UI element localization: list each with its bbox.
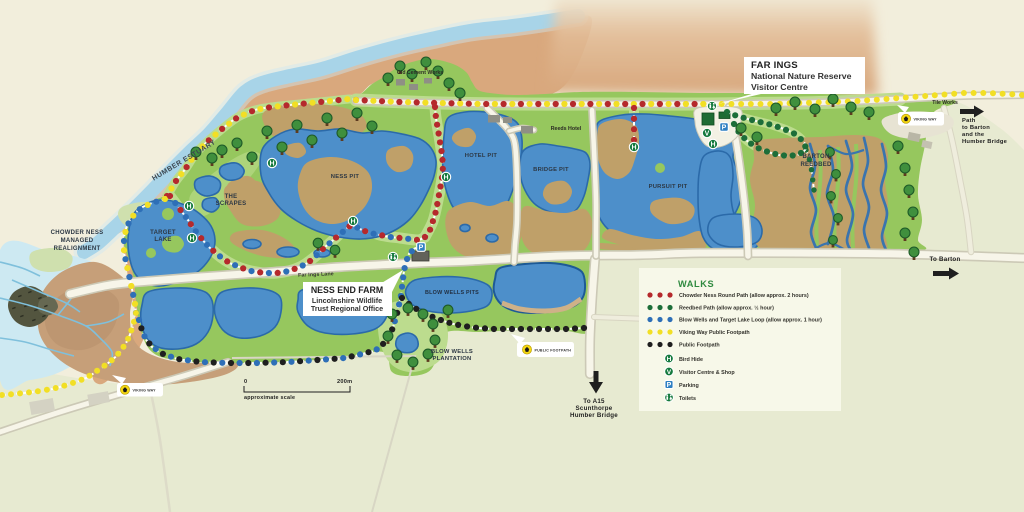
- svg-text:To A15: To A15: [583, 398, 605, 405]
- svg-text:PLANTATION: PLANTATION: [433, 356, 472, 362]
- svg-text:V: V: [705, 131, 710, 138]
- svg-text:Reedbed Path (allow approx. ½: Reedbed Path (allow approx. ½ hour): [679, 305, 774, 312]
- svg-text:Tile Works: Tile Works: [932, 100, 958, 106]
- svg-text:BLOW WELLS PITS: BLOW WELLS PITS: [425, 290, 479, 296]
- svg-text:VIKING WAY: VIKING WAY: [133, 389, 157, 393]
- svg-text:and the: and the: [962, 132, 985, 138]
- svg-text:to Barton: to Barton: [962, 125, 990, 131]
- svg-text:H: H: [269, 161, 274, 168]
- svg-text:P: P: [667, 382, 672, 389]
- svg-text:P: P: [419, 245, 424, 252]
- svg-text:H: H: [189, 236, 194, 243]
- svg-text:V: V: [667, 369, 672, 376]
- svg-text:H: H: [710, 142, 715, 149]
- svg-text:THE: THE: [225, 194, 238, 200]
- svg-text:P: P: [722, 125, 727, 132]
- svg-text:HOTEL PIT: HOTEL PIT: [465, 153, 498, 159]
- svg-text:SCRAPES: SCRAPES: [216, 201, 247, 207]
- svg-text:NESS PIT: NESS PIT: [331, 174, 360, 180]
- svg-text:Visitor Centre & Shop: Visitor Centre & Shop: [679, 370, 735, 376]
- svg-text:approximate scale: approximate scale: [244, 395, 295, 401]
- svg-text:Toilets: Toilets: [679, 396, 696, 402]
- svg-text:Humber Bridge: Humber Bridge: [962, 139, 1008, 145]
- svg-text:TARGET: TARGET: [150, 230, 176, 236]
- svg-text:REEDBED: REEDBED: [800, 162, 832, 168]
- svg-text:H: H: [443, 175, 448, 182]
- svg-text:H: H: [186, 204, 191, 211]
- svg-text:Chowder Ness Round Path (allow: Chowder Ness Round Path (allow approx. 2…: [679, 293, 809, 299]
- svg-text:H: H: [667, 356, 672, 363]
- svg-text:BRIDGE PIT: BRIDGE PIT: [533, 167, 569, 173]
- svg-text:Visitor Centre: Visitor Centre: [751, 82, 808, 92]
- svg-text:Scunthorpe: Scunthorpe: [576, 405, 613, 412]
- svg-text:WALKS: WALKS: [678, 279, 714, 289]
- svg-text:Reeds Hotel: Reeds Hotel: [551, 126, 582, 132]
- svg-text:Bird Hide: Bird Hide: [679, 357, 703, 363]
- svg-text:National Nature Reserve: National Nature Reserve: [751, 71, 852, 81]
- svg-text:To Barton: To Barton: [929, 256, 960, 263]
- svg-text:Parking: Parking: [679, 383, 699, 389]
- svg-text:REALIGNMENT: REALIGNMENT: [54, 246, 101, 252]
- svg-text:200m: 200m: [337, 379, 352, 385]
- svg-text:PURSUIT PIT: PURSUIT PIT: [649, 184, 688, 190]
- svg-text:H: H: [350, 219, 355, 226]
- svg-text:PUBLIC FOOTPATH: PUBLIC FOOTPATH: [535, 348, 572, 352]
- svg-text:Humber Bridge: Humber Bridge: [570, 412, 618, 419]
- svg-text:Viking Way Public Footpath: Viking Way Public Footpath: [679, 330, 750, 336]
- svg-text:Trust Regional Office: Trust Regional Office: [311, 304, 383, 313]
- svg-text:BLOW WELLS: BLOW WELLS: [431, 349, 473, 355]
- svg-text:Blow Wells and Target Lake Loo: Blow Wells and Target Lake Loop (allow a…: [679, 318, 822, 324]
- svg-text:Path: Path: [962, 118, 976, 124]
- svg-text:LAKE: LAKE: [154, 237, 171, 243]
- svg-text:FAR INGS: FAR INGS: [751, 60, 798, 71]
- svg-text:CHOWDER NESS: CHOWDER NESS: [51, 230, 104, 236]
- svg-text:Old Cement Works: Old Cement Works: [397, 70, 443, 76]
- svg-text:VIKING WAY: VIKING WAY: [914, 118, 938, 122]
- svg-text:Public Footpath: Public Footpath: [679, 343, 720, 349]
- svg-text:MANAGED: MANAGED: [61, 238, 94, 244]
- svg-text:BARTON: BARTON: [802, 154, 829, 160]
- svg-text:0: 0: [244, 379, 247, 385]
- svg-text:H: H: [631, 145, 636, 152]
- svg-text:NESS END FARM: NESS END FARM: [311, 285, 383, 295]
